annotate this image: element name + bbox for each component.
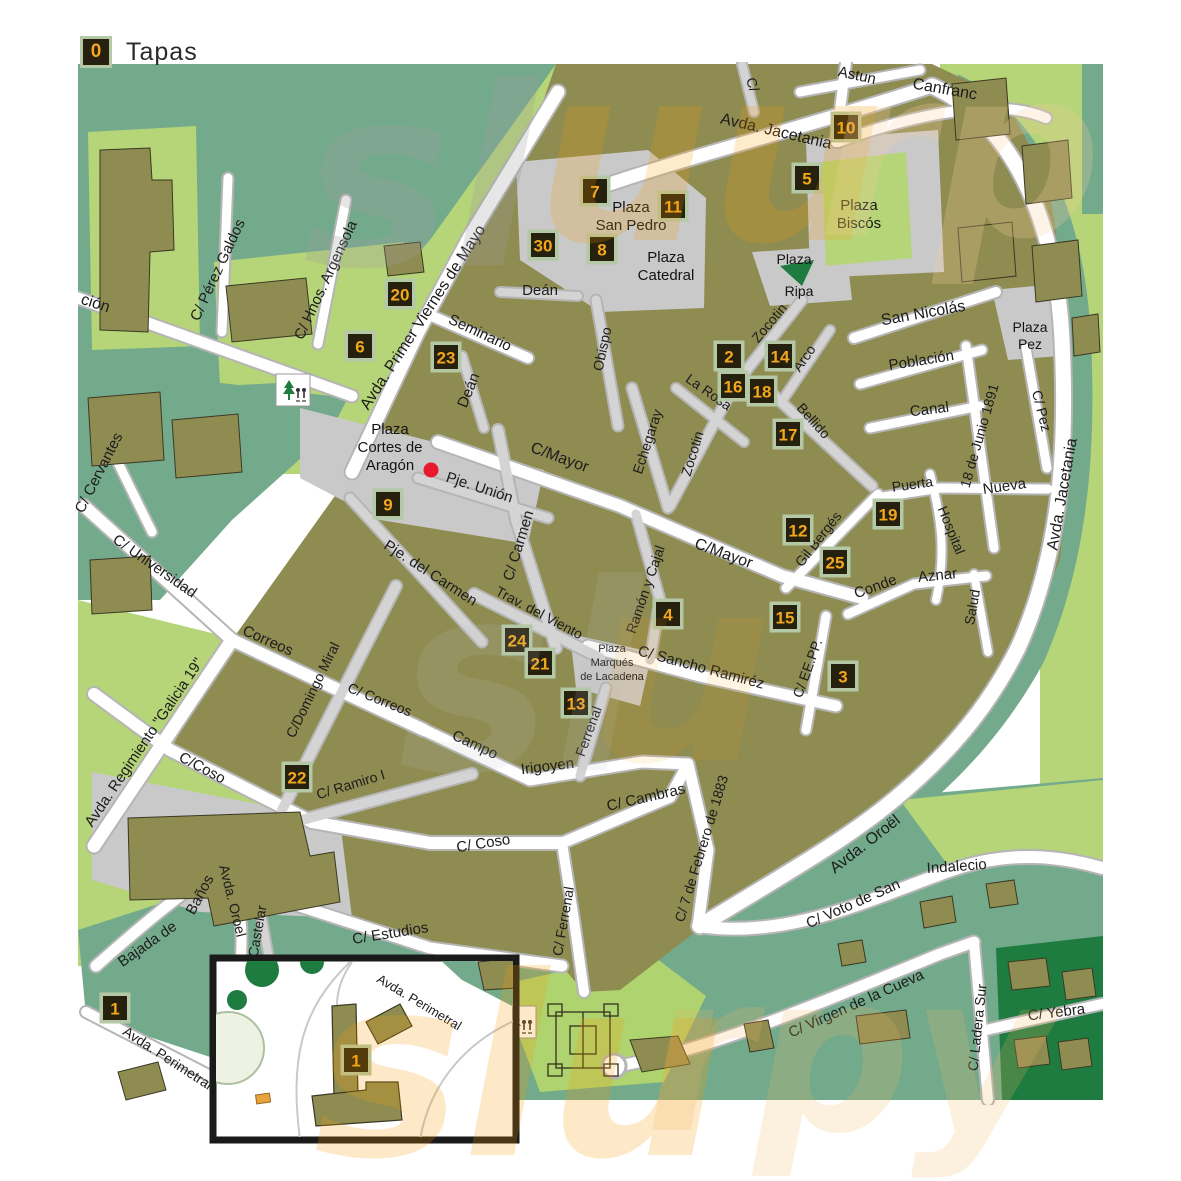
legend-marker-0: 0 <box>80 36 112 68</box>
watermark-text: sl <box>303 33 541 324</box>
watermark-text: rp <box>818 18 1102 291</box>
map-page: 0 Tapas <box>0 0 1181 1181</box>
svg-text:18: 18 <box>753 383 772 402</box>
poi-marker-18[interactable]: 18 <box>747 376 778 407</box>
svg-text:1: 1 <box>110 1000 119 1019</box>
svg-text:17: 17 <box>779 426 798 445</box>
svg-text:3: 3 <box>838 668 847 687</box>
svg-text:25: 25 <box>826 554 845 573</box>
location-dot <box>424 463 439 478</box>
svg-text:6: 6 <box>355 338 364 357</box>
poi-marker-12[interactable]: 12 <box>783 515 814 546</box>
svg-text:15: 15 <box>776 609 795 628</box>
poi-marker-17[interactable]: 17 <box>773 419 804 450</box>
poi-marker-23[interactable]: 23 <box>431 342 462 373</box>
svg-text:23: 23 <box>437 349 456 368</box>
legend: 0 Tapas <box>80 36 198 68</box>
svg-text:12: 12 <box>789 522 808 541</box>
poi-marker-25[interactable]: 25 <box>820 547 851 578</box>
legend-label: Tapas <box>126 38 198 67</box>
poi-marker-2[interactable]: 2 <box>714 341 745 372</box>
poi-marker-19[interactable]: 19 <box>873 499 904 530</box>
svg-text:19: 19 <box>879 506 898 525</box>
poi-marker-22[interactable]: 22 <box>282 762 313 793</box>
svg-text:22: 22 <box>288 769 307 788</box>
poi-marker-1[interactable]: 1 <box>100 993 131 1024</box>
svg-text:9: 9 <box>383 496 392 515</box>
poi-marker-6[interactable]: 6 <box>345 331 376 362</box>
poi-marker-16[interactable]: 16 <box>718 371 749 402</box>
svg-text:14: 14 <box>771 348 790 367</box>
watermark-text: u <box>587 520 772 822</box>
poi-marker-15[interactable]: 15 <box>770 602 801 633</box>
svg-text:16: 16 <box>724 378 743 397</box>
park-pictogram-icon <box>276 374 310 406</box>
poi-marker-14[interactable]: 14 <box>765 341 796 372</box>
svg-text:2: 2 <box>724 348 733 367</box>
poi-marker-3[interactable]: 3 <box>828 661 859 692</box>
watermark-text: rpy <box>645 926 1063 1181</box>
city-map: ciónC/ Pérez GaldosC/ Hnos. ArgensolaAvd… <box>0 0 1181 1181</box>
poi-marker-9[interactable]: 9 <box>373 489 404 520</box>
